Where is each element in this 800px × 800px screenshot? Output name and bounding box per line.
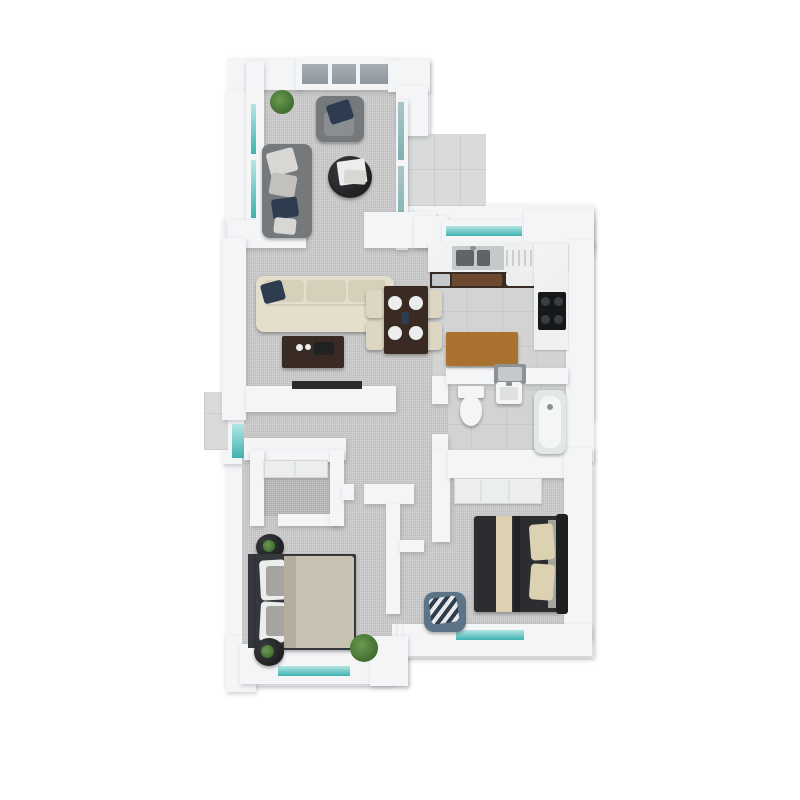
- cooktop-burner-4: [554, 315, 563, 324]
- bedroom-1-nightstand-plant: [263, 540, 275, 552]
- bathtub-drain: [547, 404, 553, 410]
- lounge-plant: [270, 90, 294, 114]
- living-sofa-cushion-2: [306, 280, 346, 302]
- lounge-sofa-pillow-2: [268, 172, 297, 198]
- patio-tiles: [408, 134, 486, 206]
- dining-plate-4: [409, 326, 423, 340]
- dining-plate-2: [409, 296, 423, 310]
- wall-hall-vertical: [386, 504, 400, 614]
- lounge-window-left-1: [251, 104, 256, 154]
- tv-screen: [292, 381, 362, 389]
- bedroom-1-door-floor: [344, 440, 374, 462]
- kitchen-faucet: [470, 246, 476, 250]
- toilet-bowl: [460, 396, 482, 426]
- wall-hall-tee: [364, 484, 414, 504]
- cooktop-burner-1: [541, 297, 550, 306]
- kitchen-sink-basin-2: [477, 250, 490, 266]
- bedroom-2-duvet-fold: [514, 516, 520, 612]
- lounge-sofa-pillow-3: [271, 196, 300, 219]
- bedroom-2-wardrobe: [454, 478, 542, 504]
- kitchen-table: [446, 332, 518, 366]
- screenshot-canvas: { "palette": { "wall":"#f4f5f7","wall-sh…: [0, 0, 800, 800]
- lounge-sofa-pillow-4: [273, 217, 297, 235]
- bathroom-door-floor: [432, 404, 448, 434]
- dining-plate-1: [388, 296, 402, 310]
- kitchen-appliance-white: [506, 271, 536, 286]
- wall-hall-stub: [400, 540, 424, 552]
- kitchen-cabinet-doors: [452, 274, 502, 286]
- bedroom-1-pillow-inner-2: [266, 606, 286, 636]
- bedroom-2-wardrobe-divider-2: [508, 480, 510, 502]
- living-table-cup-1: [296, 344, 303, 351]
- wall-bedroom-2-right: [564, 448, 592, 640]
- bathroom-sink-bowl: [500, 387, 518, 400]
- dining-plate-3: [388, 326, 402, 340]
- wall-left-main: [222, 238, 246, 420]
- floorplan-stage: [0, 0, 800, 800]
- cooktop-burner-3: [541, 315, 550, 324]
- cooktop-burner-2: [554, 297, 563, 306]
- entry-door: [232, 424, 244, 458]
- living-table-cup-2: [305, 344, 311, 350]
- dining-chair-1: [366, 290, 384, 318]
- closet-wardrobe: [264, 460, 328, 478]
- wall-right-main: [566, 240, 594, 462]
- bedroom-2-pillow-2: [529, 563, 555, 601]
- dining-centerpiece: [401, 312, 409, 324]
- bedroom-1-window: [278, 666, 350, 676]
- bedroom-1-pillow-inner-1: [266, 566, 286, 596]
- kitchen-sink-basin-1: [456, 250, 474, 266]
- lounge-glazing-mullion-1: [328, 60, 332, 86]
- living-table-tray: [314, 342, 334, 355]
- lounge-glazing: [302, 64, 388, 84]
- bedroom-2-throw: [496, 516, 512, 612]
- lounge-glass-door-1: [398, 102, 404, 160]
- kitchen-dishwasher: [432, 274, 450, 286]
- lounge-table-book: [344, 169, 367, 185]
- bedroom-2-pillow-1: [529, 523, 555, 561]
- lounge-glazing-mullion-2: [356, 60, 360, 86]
- kitchen-window: [446, 226, 522, 236]
- wall-bedroom-2-top: [448, 450, 572, 478]
- closet-wardrobe-divider: [294, 462, 296, 476]
- wall-tv: [246, 386, 396, 412]
- bedroom-1-duvet-fold: [284, 556, 296, 648]
- bedroom-2-armchair-cushion: [428, 595, 459, 625]
- bathroom-sink-faucet: [506, 382, 512, 386]
- bedroom-2-wardrobe-divider-1: [480, 480, 482, 502]
- bedroom-2-headboard: [556, 514, 568, 614]
- dining-chair-2: [366, 322, 384, 350]
- lounge-window-left-2: [251, 160, 256, 218]
- living-coffee-table: [282, 336, 344, 368]
- wall-closet-stub: [342, 484, 354, 500]
- utility-appliance-top: [498, 367, 522, 381]
- bedroom-2-window: [456, 630, 524, 640]
- wall-closet-left: [250, 450, 264, 526]
- bedroom-1-nightstand-flowers: [261, 645, 274, 658]
- bedroom-1-plant: [350, 634, 378, 662]
- kitchen-drainboard: [506, 250, 532, 266]
